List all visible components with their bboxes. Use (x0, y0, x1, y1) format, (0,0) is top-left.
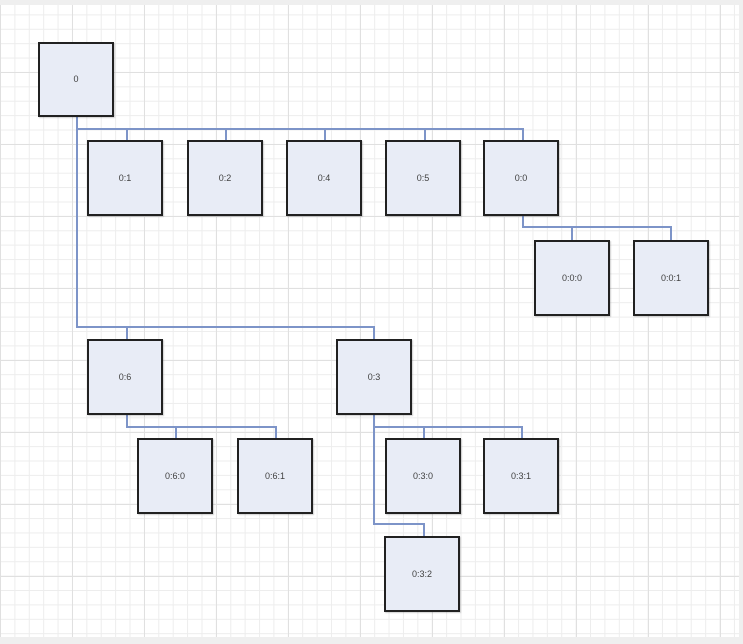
canvas-frame-bottom (0, 637, 743, 644)
node-0-0-0[interactable]: 0:0:0 (534, 240, 610, 316)
edge-segment (126, 426, 276, 428)
canvas-frame-top (0, 0, 743, 5)
edge-segment (373, 326, 375, 340)
node-label: 0:0 (515, 174, 528, 183)
node-0-0[interactable]: 0:0 (483, 140, 559, 216)
node-label: 0:3 (368, 373, 381, 382)
node-0-5[interactable]: 0:5 (385, 140, 461, 216)
node-label: 0:0:1 (661, 274, 681, 283)
node-0-6[interactable]: 0:6 (87, 339, 163, 415)
node-label: 0:1 (119, 174, 132, 183)
edge-segment (571, 226, 573, 241)
edge-segment (670, 226, 672, 241)
node-0-4[interactable]: 0:4 (286, 140, 362, 216)
edge-segment (373, 523, 424, 525)
node-label: 0:5 (417, 174, 430, 183)
canvas-frame-right (739, 0, 743, 644)
node-label: 0:6 (119, 373, 132, 382)
node-0-3-1[interactable]: 0:3:1 (483, 438, 559, 514)
node-0-6-0[interactable]: 0:6:0 (137, 438, 213, 514)
node-0-2[interactable]: 0:2 (187, 140, 263, 216)
node-label: 0:6:0 (165, 472, 185, 481)
node-0-3[interactable]: 0:3 (336, 339, 412, 415)
node-label: 0:4 (318, 174, 331, 183)
node-0-6-1[interactable]: 0:6:1 (237, 438, 313, 514)
edge-segment (76, 128, 523, 130)
edge-segment (76, 117, 78, 327)
node-label: 0:3:0 (413, 472, 433, 481)
edge-segment (522, 226, 671, 228)
edge-segment (126, 326, 128, 340)
node-label: 0 (73, 75, 78, 84)
node-label: 0:6:1 (265, 472, 285, 481)
node-label: 0:0:0 (562, 274, 582, 283)
node-label: 0:3:1 (511, 472, 531, 481)
node-0-0-1[interactable]: 0:0:1 (633, 240, 709, 316)
node-label: 0:2 (219, 174, 232, 183)
node-0-3-2[interactable]: 0:3:2 (384, 536, 460, 612)
node-label: 0:3:2 (412, 570, 432, 579)
diagram-canvas[interactable]: 0 0:1 0:2 0:4 0:5 0:0 0:0:0 0:0:1 0:6 0:… (0, 0, 743, 644)
edge-segment (76, 326, 374, 328)
node-0[interactable]: 0 (38, 42, 114, 117)
edge-segment (373, 426, 522, 428)
edge-segment (423, 523, 425, 537)
edge-segment (373, 415, 375, 525)
node-0-3-0[interactable]: 0:3:0 (385, 438, 461, 514)
node-0-1[interactable]: 0:1 (87, 140, 163, 216)
